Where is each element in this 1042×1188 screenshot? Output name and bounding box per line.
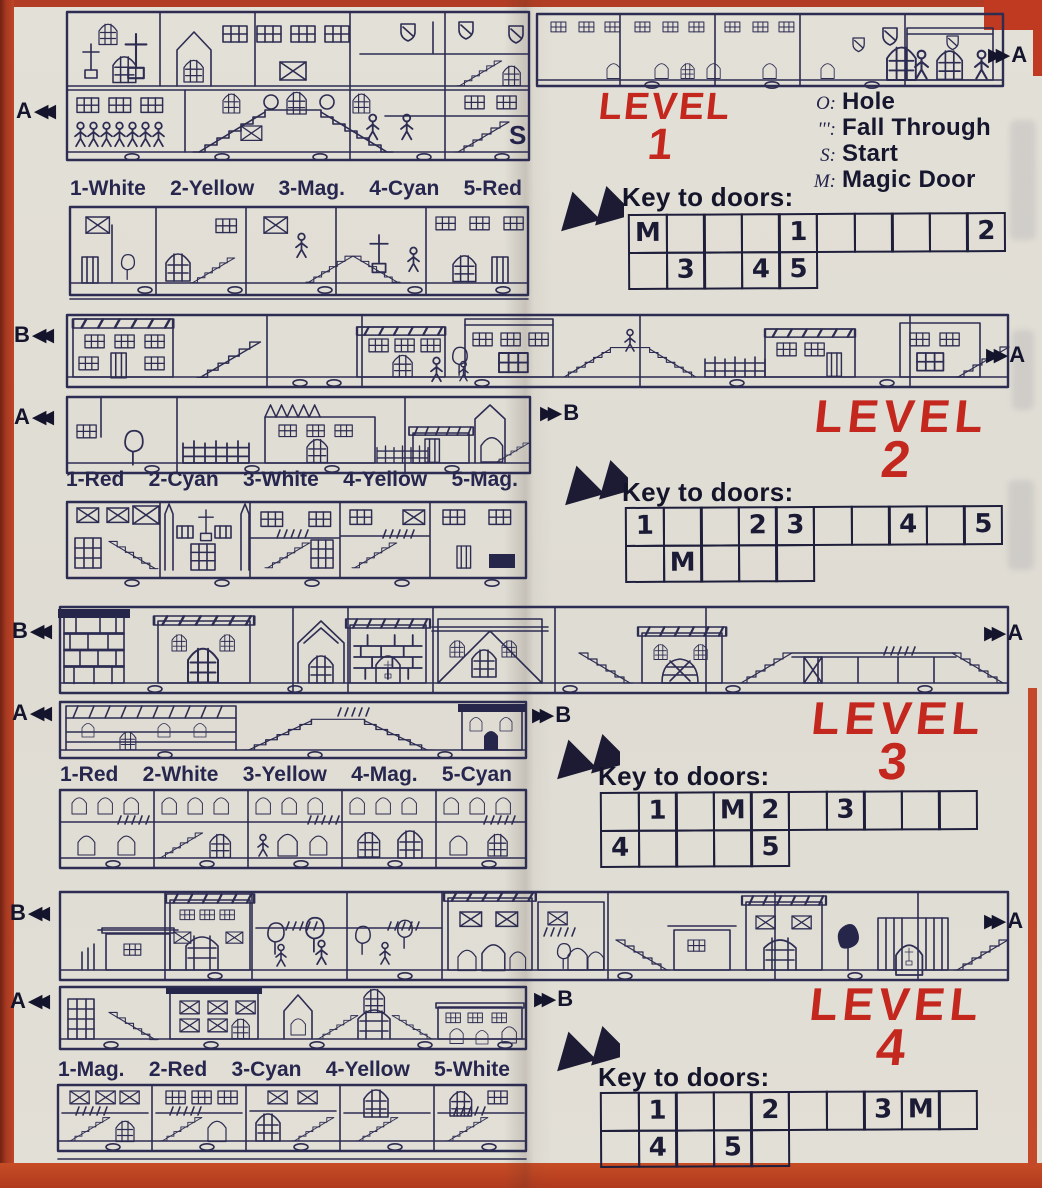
route-marker-A-left: A ◀◀ — [12, 700, 53, 726]
route-marker-B-mid: ▶▶ B — [538, 400, 579, 426]
route-marker-letter: B — [12, 618, 28, 644]
double-right-arrow-icon: ▶▶ — [538, 402, 563, 424]
door-key-cell — [628, 251, 668, 289]
route-marker-A-right: ▶▶ A — [982, 620, 1023, 646]
door-key-grid-1: M 1 2 3 4 5 — [628, 212, 1007, 290]
level-title-number: 1 — [584, 125, 738, 165]
level-4-map-upper — [58, 888, 1010, 987]
double-right-arrow-icon: ▶▶ — [984, 344, 1009, 366]
color-key-token: 1-Red — [66, 468, 124, 492]
door-key-cell: M — [713, 791, 753, 831]
fall-through-symbol-icon: ''': — [802, 119, 836, 141]
start-marker-label: S — [509, 120, 526, 150]
door-key-cell — [638, 829, 678, 867]
door-key-cell — [675, 1091, 715, 1131]
door-key-cell: M — [901, 1090, 941, 1130]
route-marker-letter: A — [1009, 342, 1025, 368]
door-key-cell: 5 — [713, 1129, 753, 1167]
route-marker-letter: A — [1011, 42, 1027, 68]
level-1-map-upper-right — [535, 10, 1007, 95]
key-pointer-arrow-icon — [552, 166, 624, 254]
level-1-title: LEVEL 1 — [584, 90, 742, 165]
route-marker-A-right: ▶▶ A — [986, 42, 1027, 68]
route-marker-letter: A — [1007, 908, 1023, 934]
door-key-cell — [788, 791, 828, 831]
door-key-cell: 2 — [738, 506, 778, 546]
door-key-cell — [700, 544, 740, 582]
route-marker-B-left: B ◀◀ — [10, 900, 51, 926]
route-marker-letter: B — [563, 400, 579, 426]
door-key-cell — [850, 506, 890, 546]
door-key-cell — [816, 213, 856, 253]
route-marker-A-left: A ◀◀ — [10, 988, 51, 1014]
door-key-cell: 3 — [775, 506, 815, 546]
double-left-arrow-icon: ◀◀ — [28, 620, 53, 642]
door-key-cell — [703, 213, 743, 253]
door-key-cell: 2 — [750, 791, 790, 831]
color-key-token: 4-Mag. — [351, 763, 418, 787]
door-key-grid-2: 1 2 3 4 5 M — [625, 505, 1004, 583]
level-title-number: 3 — [787, 739, 1000, 787]
double-right-arrow-icon: ▶▶ — [986, 44, 1011, 66]
color-key-token: 5-Cyan — [442, 763, 512, 787]
door-key-cell: 2 — [966, 212, 1006, 252]
door-key-cell — [662, 507, 702, 547]
key-pointer-arrow-icon — [556, 440, 628, 528]
door-key-cell — [788, 1091, 828, 1131]
color-key-token: 5-Mag. — [451, 468, 518, 492]
door-key-cell: 5 — [750, 829, 790, 867]
page-frame-right — [1028, 688, 1037, 1166]
key-to-doors-heading-3: Key to doors: — [598, 761, 769, 792]
color-key-token: 5-Red — [464, 177, 522, 201]
level-3-title: LEVEL 3 — [787, 697, 1004, 787]
door-key-cell: 1 — [625, 507, 665, 547]
route-marker-A-left: A ◀◀ — [14, 404, 55, 430]
color-key-token: 2-White — [143, 763, 219, 787]
color-key-token: 2-Red — [149, 1058, 207, 1082]
door-key-row: M 1 2 — [628, 212, 1007, 254]
level-1-map-upper-left: S — [65, 8, 532, 168]
color-key-token: 2-Cyan — [149, 468, 219, 492]
color-key-token: 4-Yellow — [343, 468, 427, 492]
map-symbol-legend: O: Hole ''': Fall Through S: Start M: Ma… — [802, 88, 1042, 192]
route-marker-letter: A — [14, 404, 30, 430]
route-marker-B-left: B ◀◀ — [14, 322, 55, 348]
door-key-cell: 4 — [888, 505, 928, 545]
level-4-map-interior — [56, 1083, 528, 1169]
door-key-cell — [713, 829, 753, 867]
door-key-cell — [926, 505, 966, 545]
door-key-cell — [891, 212, 931, 252]
legend-row-start: S: Start — [802, 140, 1042, 166]
door-key-cell — [775, 544, 815, 582]
door-key-row: M — [625, 543, 1004, 583]
key-to-doors-heading-2: Key to doors: — [622, 477, 793, 508]
level-1-map-lower — [68, 205, 530, 301]
level-2-map-interior — [65, 498, 530, 586]
page-frame-corner-sliver — [1033, 28, 1042, 76]
level-4-door-color-key: 1-Mag. 2-Red 3-Cyan 4-Yellow 5-White — [58, 1058, 510, 1082]
door-key-cell: 3 — [825, 791, 865, 831]
color-key-token: 4-Yellow — [326, 1058, 410, 1082]
level-title-number: 4 — [785, 1025, 998, 1073]
door-key-grid-3: 1 M 2 3 4 5 — [600, 790, 979, 868]
door-key-cell: 4 — [638, 1129, 678, 1167]
level-3-map-lower-left — [58, 700, 528, 764]
route-marker-A-left: A ◀◀ — [16, 98, 57, 124]
door-key-cell — [741, 213, 781, 253]
door-key-cell: 3 — [666, 251, 706, 289]
door-key-cell — [675, 791, 715, 831]
door-key-cell — [938, 790, 978, 830]
door-key-cell — [938, 1090, 978, 1130]
route-marker-letter: A — [12, 700, 28, 726]
door-key-cell — [600, 1092, 640, 1132]
key-to-doors-heading-1: Key to doors: — [622, 182, 793, 213]
door-key-cell — [665, 214, 705, 254]
route-marker-letter: B — [14, 322, 30, 348]
door-key-cell — [901, 790, 941, 830]
door-key-cell — [929, 212, 969, 252]
color-key-token: 1-Mag. — [58, 1058, 125, 1082]
level-2-door-color-key: 1-Red 2-Cyan 3-White 4-Yellow 5-Mag. — [66, 468, 518, 492]
legend-label: Start — [842, 140, 898, 168]
double-left-arrow-icon: ◀◀ — [32, 100, 57, 122]
door-key-row: 4 5 — [600, 828, 979, 868]
route-marker-A-right: ▶▶ A — [984, 342, 1025, 368]
level-3-map-upper — [58, 603, 1010, 700]
double-left-arrow-icon: ◀◀ — [30, 406, 55, 428]
door-key-cell — [825, 1091, 865, 1131]
route-marker-A-right: ▶▶ A — [982, 908, 1023, 934]
level-3-map-interior — [58, 788, 528, 876]
start-symbol-icon: S: — [802, 145, 836, 167]
route-marker-B-left: B ◀◀ — [12, 618, 53, 644]
door-key-row: 3 4 5 — [628, 250, 1007, 290]
double-left-arrow-icon: ◀◀ — [30, 324, 55, 346]
color-key-token: 2-Yellow — [170, 177, 254, 201]
double-left-arrow-icon: ◀◀ — [28, 702, 53, 724]
door-key-cell: 3 — [863, 1090, 903, 1130]
level-2-title: LEVEL 2 — [790, 395, 1007, 485]
door-key-cell: 4 — [600, 829, 640, 867]
door-key-cell — [738, 544, 778, 582]
door-key-cell — [625, 544, 665, 582]
color-key-token: 1-White — [70, 177, 146, 201]
level-2-map-upper — [65, 313, 1010, 395]
scanned-game-map-page: S A ◀◀ ▶▶ A LEVEL — [0, 0, 1042, 1188]
route-marker-letter: A — [16, 98, 32, 124]
door-key-cell — [750, 1129, 790, 1167]
page-frame-top — [10, 0, 1042, 7]
door-key-cell: 5 — [963, 505, 1003, 545]
route-marker-letter: A — [1007, 620, 1023, 646]
door-key-cell: 5 — [778, 251, 818, 289]
color-key-token: 3-Mag. — [278, 177, 345, 201]
door-key-row: 4 5 — [600, 1128, 979, 1168]
color-key-token: 1-Red — [60, 763, 118, 787]
door-key-cell — [675, 829, 715, 867]
route-marker-letter: B — [10, 900, 26, 926]
level-4-map-lower-left — [58, 985, 528, 1057]
door-key-cell: M — [628, 214, 668, 254]
door-key-row: 1 2 3 M — [600, 1090, 979, 1132]
double-right-arrow-icon: ▶▶ — [982, 622, 1007, 644]
door-key-cell — [600, 792, 640, 832]
legend-label: Magic Door — [842, 166, 976, 194]
door-key-cell — [600, 1129, 640, 1167]
legend-row-magic-door: M: Magic Door — [802, 166, 1042, 192]
door-key-grid-4: 1 2 3 M 4 5 — [600, 1090, 979, 1168]
door-key-cell: 1 — [637, 1092, 677, 1132]
color-key-token: 3-White — [243, 468, 319, 492]
level-3-door-color-key: 1-Red 2-White 3-Yellow 4-Mag. 5-Cyan — [60, 763, 512, 787]
door-key-cell — [863, 790, 903, 830]
door-key-cell: M — [663, 544, 703, 582]
key-to-doors-heading-4: Key to doors: — [598, 1062, 769, 1093]
legend-label: Fall Through — [842, 114, 991, 142]
level-1-door-color-key: 1-White 2-Yellow 3-Mag. 4-Cyan 5-Red — [70, 177, 522, 201]
color-key-token: 4-Cyan — [369, 177, 439, 201]
door-key-cell — [703, 251, 743, 289]
door-key-cell: 1 — [778, 213, 818, 253]
door-key-row: 1 2 3 4 5 — [625, 505, 1004, 547]
door-key-cell — [700, 506, 740, 546]
double-left-arrow-icon: ◀◀ — [26, 990, 51, 1012]
color-key-token: 3-Cyan — [231, 1058, 301, 1082]
magic-door-symbol-icon: M: — [802, 171, 836, 193]
door-key-cell — [853, 213, 893, 253]
route-marker-letter: A — [10, 988, 26, 1014]
door-key-row: 1 M 2 3 — [600, 790, 979, 832]
legend-row-fall-through: ''': Fall Through — [802, 114, 1042, 140]
color-key-token: 3-Yellow — [243, 763, 327, 787]
door-key-cell — [813, 506, 853, 546]
door-key-cell: 2 — [750, 1091, 790, 1131]
double-right-arrow-icon: ▶▶ — [982, 910, 1007, 932]
legend-label: Hole — [842, 88, 895, 116]
level-title-number: 2 — [790, 437, 1003, 485]
door-key-cell: 1 — [637, 792, 677, 832]
hole-symbol-icon: O: — [802, 93, 836, 115]
color-key-token: 5-White — [434, 1058, 510, 1082]
page-bleed-ghost — [1008, 480, 1034, 570]
door-key-cell: 4 — [741, 251, 781, 289]
level-4-title: LEVEL 4 — [785, 983, 1002, 1073]
double-left-arrow-icon: ◀◀ — [26, 902, 51, 924]
door-key-cell — [675, 1129, 715, 1167]
legend-row-hole: O: Hole — [802, 88, 1042, 114]
door-key-cell — [713, 1091, 753, 1131]
